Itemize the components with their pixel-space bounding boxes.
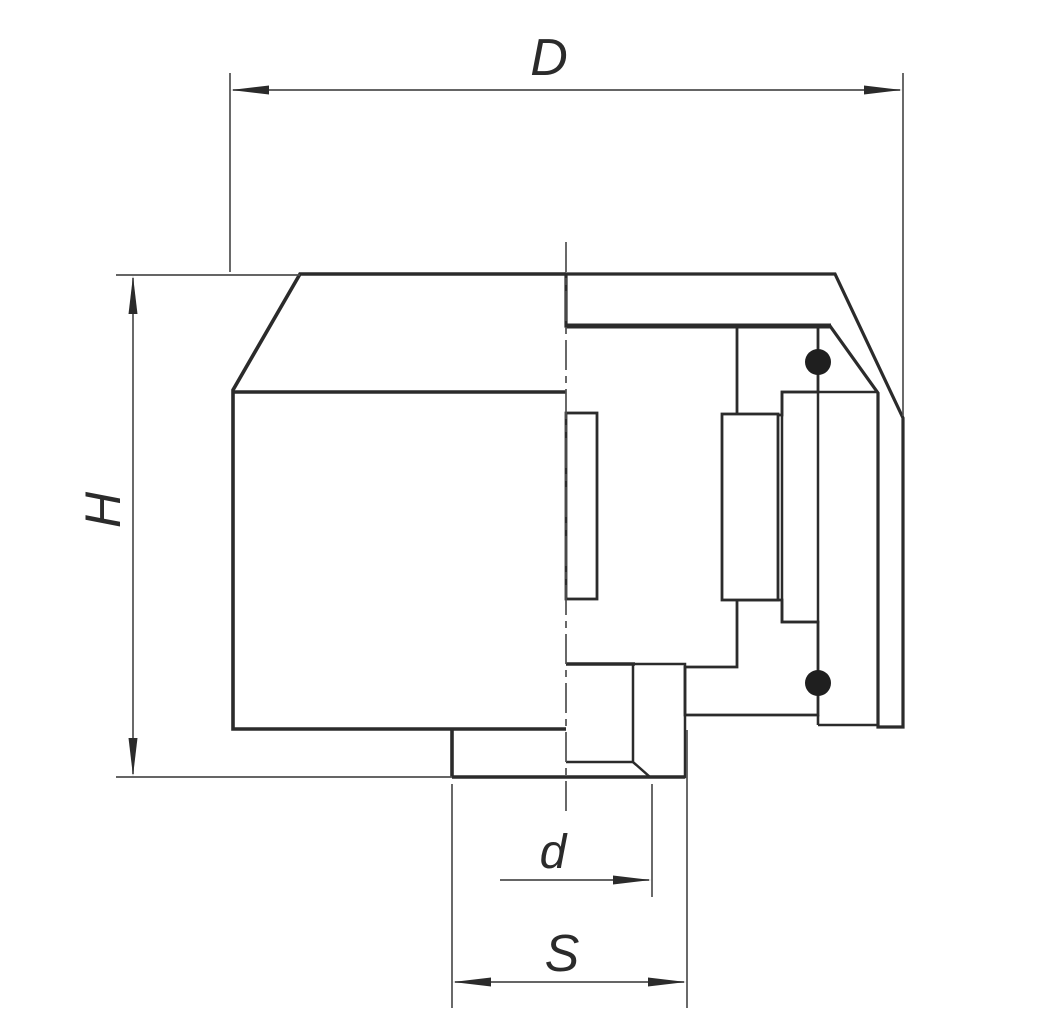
dimension-bore-diameter: d — [500, 784, 652, 897]
inner-piece-upper-arm — [737, 326, 818, 415]
d-arrow-right — [864, 86, 902, 95]
thread-sleeve-right — [782, 392, 818, 622]
cap-body-view — [233, 274, 685, 777]
body-outline — [233, 274, 566, 729]
h-arrow-top — [129, 276, 138, 314]
o-ring-dot-bottom — [805, 670, 831, 696]
s-arrow-right — [648, 978, 686, 987]
neck-wall-right — [633, 664, 685, 777]
dimension-height: H — [75, 275, 452, 777]
o-ring-dot-top — [805, 349, 831, 375]
thread-relief-right — [722, 414, 778, 600]
dimension-label-bore-diameter: d — [540, 826, 568, 879]
dimension-label-socket-diameter: S — [545, 925, 580, 983]
bore-arrow-right — [613, 876, 651, 885]
dimension-label-outer-diameter: D — [530, 29, 568, 87]
inner-piece-lower-arm — [685, 600, 818, 715]
d-arrow-left — [231, 86, 269, 95]
s-arrow-left — [453, 978, 491, 987]
thread-relief-left — [566, 413, 597, 599]
technical-drawing-canvas: D H d S — [0, 0, 1055, 1012]
dimension-label-height: H — [75, 491, 131, 528]
technical-drawing-page: D H d S — [0, 0, 1055, 1012]
h-arrow-bottom — [129, 738, 138, 776]
